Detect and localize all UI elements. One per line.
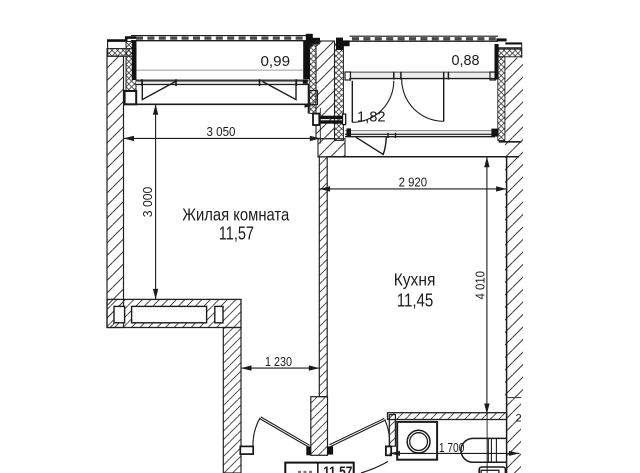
svg-text:11,57: 11,57 [323,464,352,473]
svg-text:4 010: 4 010 [472,271,487,300]
svg-text:1 700: 1 700 [439,440,465,455]
svg-text:0,88: 0,88 [452,52,480,69]
svg-text:11,45: 11,45 [397,290,434,310]
svg-text:3 000: 3 000 [140,187,155,217]
svg-text:Жилая комната: Жилая комната [182,205,289,225]
svg-text:Кухня: Кухня [394,270,436,290]
svg-text:0,99: 0,99 [261,53,291,70]
svg-text:1,82: 1,82 [357,108,386,125]
svg-text:11,57: 11,57 [219,224,254,244]
svg-text:1 230: 1 230 [265,354,292,369]
svg-text:3 050: 3 050 [207,124,236,139]
svg-text:2: 2 [516,412,522,424]
svg-text:2 920: 2 920 [399,174,428,189]
